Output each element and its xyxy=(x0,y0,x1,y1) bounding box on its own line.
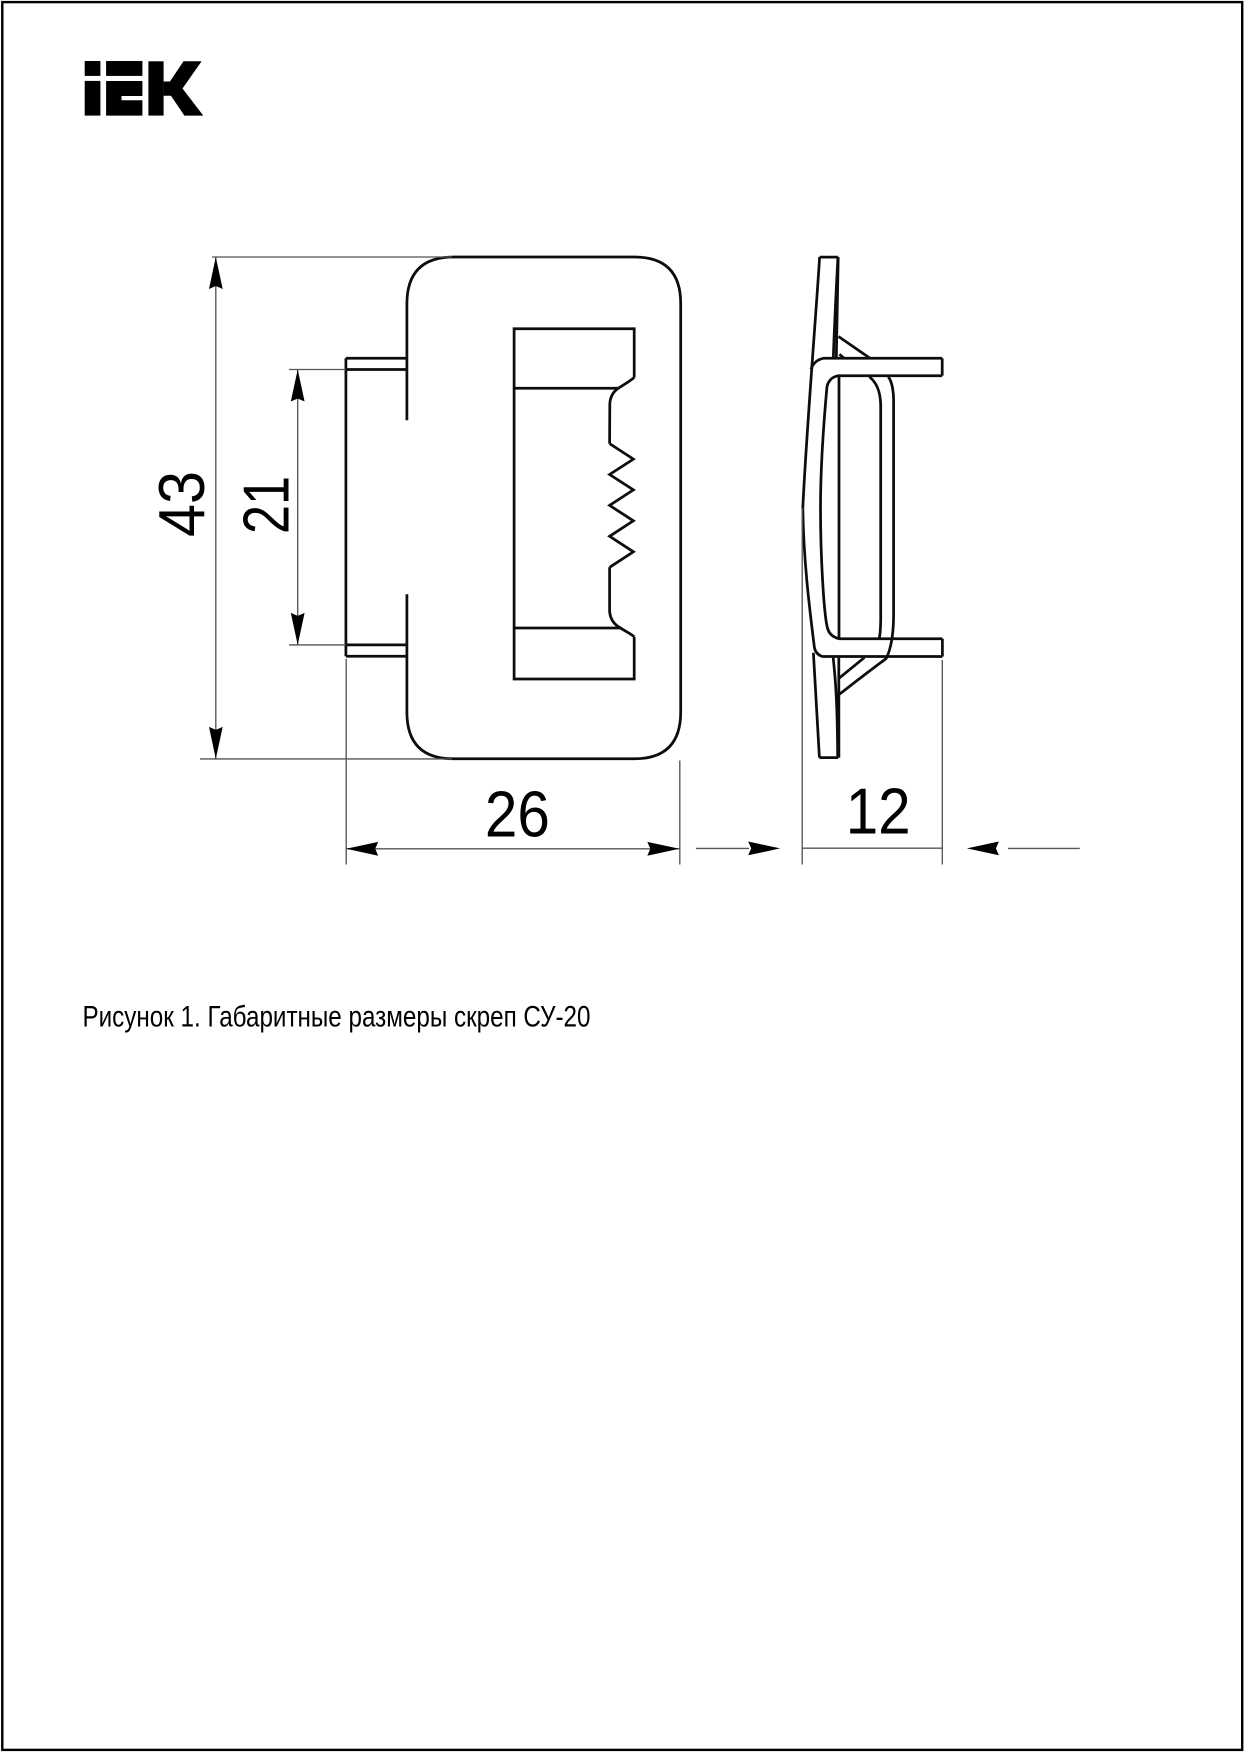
svg-text:12: 12 xyxy=(846,776,911,848)
svg-text:Рисунок 1. Габаритные размеры: Рисунок 1. Габаритные размеры скреп СУ-2… xyxy=(83,1001,591,1034)
svg-text:21: 21 xyxy=(231,476,303,534)
svg-text:26: 26 xyxy=(485,779,550,851)
svg-text:43: 43 xyxy=(146,471,218,537)
